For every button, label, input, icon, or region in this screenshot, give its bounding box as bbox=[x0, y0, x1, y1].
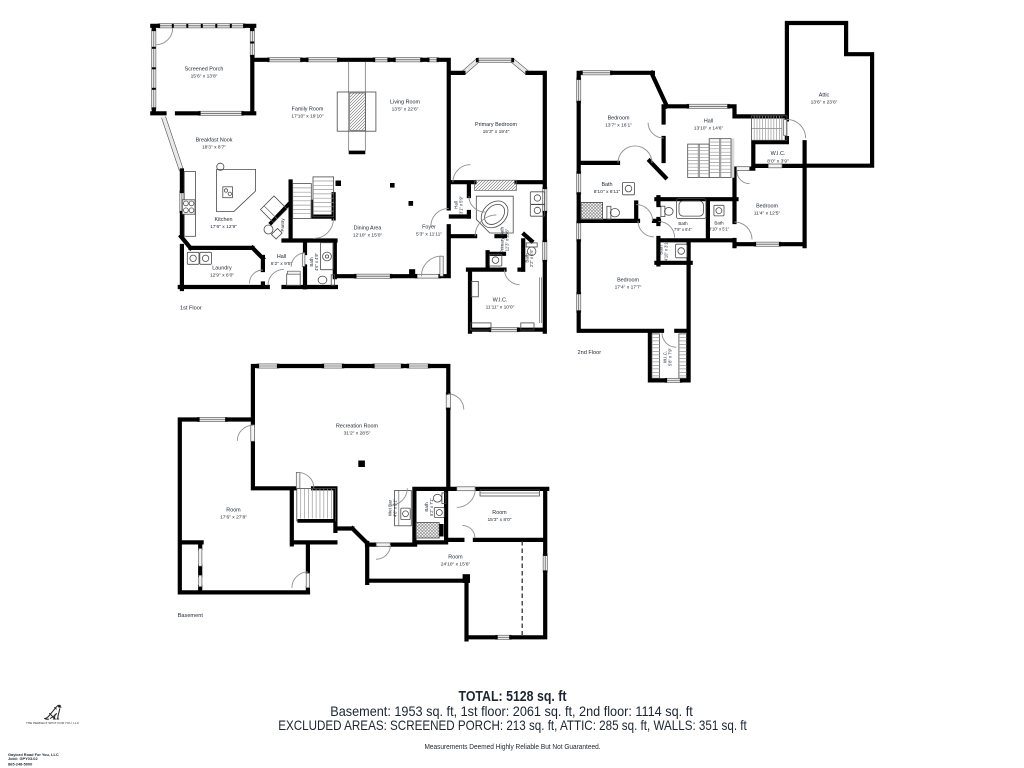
svg-text:13'6" x 23'6": 13'6" x 23'6" bbox=[811, 100, 838, 106]
svg-text:Screened Porch: Screened Porch bbox=[185, 67, 224, 73]
svg-text:8'10" x 6'11": 8'10" x 6'11" bbox=[594, 189, 621, 195]
svg-text:6'2" x 9'5": 6'2" x 9'5" bbox=[271, 261, 293, 267]
svg-text:Attic: Attic bbox=[819, 93, 830, 99]
svg-text:Room: Room bbox=[448, 555, 463, 561]
svg-text:Room: Room bbox=[226, 508, 241, 514]
svg-text:12'9" x 6'0": 12'9" x 6'0" bbox=[210, 273, 234, 279]
svg-text:Primary Bedroom: Primary Bedroom bbox=[475, 122, 517, 128]
svg-text:Bath: Bath bbox=[714, 221, 724, 226]
svg-text:Bedroom: Bedroom bbox=[756, 204, 778, 210]
svg-text:Kitchen: Kitchen bbox=[215, 217, 233, 223]
svg-text:5'3" x 11'11": 5'3" x 11'11" bbox=[416, 232, 442, 238]
svg-text:Job#: GPY03-02: Job#: GPY03-02 bbox=[8, 756, 38, 761]
svg-text:12'3" x 13'6": 12'3" x 13'6" bbox=[505, 228, 510, 251]
svg-text:Bath: Bath bbox=[678, 221, 688, 226]
svg-text:3'10" x 5'1": 3'10" x 5'1" bbox=[709, 227, 730, 232]
svg-text:Hall: Hall bbox=[704, 119, 713, 125]
svg-text:Family Room: Family Room bbox=[292, 107, 324, 113]
svg-text:4'10" x 3'10": 4'10" x 3'10" bbox=[664, 238, 669, 261]
svg-text:Laundry: Laundry bbox=[212, 266, 232, 272]
svg-text:17'6" x 27'8": 17'6" x 27'8" bbox=[220, 515, 247, 521]
svg-text:2'2" x 6'6": 2'2" x 6'6" bbox=[529, 249, 534, 267]
svg-text:Breakfast Nook: Breakfast Nook bbox=[196, 138, 233, 144]
svg-text:13'10" x 14'6": 13'10" x 14'6" bbox=[694, 126, 724, 132]
svg-text:3'1" x 5'9": 3'1" x 5'9" bbox=[459, 196, 464, 214]
svg-text:Foyer: Foyer bbox=[422, 225, 436, 231]
svg-text:31'2" x 28'5": 31'2" x 28'5" bbox=[344, 431, 371, 437]
svg-text:5'2" x 7'1": 5'2" x 7'1" bbox=[429, 498, 434, 516]
svg-text:Bedroom: Bedroom bbox=[617, 278, 639, 284]
svg-text:EXCLUDED AREAS: SCREENED PORCH: EXCLUDED AREAS: SCREENED PORCH: 213 sq. … bbox=[278, 717, 747, 733]
svg-text:W.I.C.: W.I.C. bbox=[493, 298, 508, 304]
svg-text:13'7" x 16'1": 13'7" x 16'1" bbox=[605, 123, 632, 129]
svg-text:4'8" x 8'1": 4'8" x 8'1" bbox=[392, 499, 397, 517]
svg-text:15'3" x 8'0": 15'3" x 8'0" bbox=[487, 517, 511, 523]
svg-text:Hall: Hall bbox=[277, 254, 286, 260]
svg-text:13'5" x 22'6": 13'5" x 22'6" bbox=[392, 107, 419, 113]
svg-text:Living Room: Living Room bbox=[390, 100, 420, 106]
svg-text:Bedroom: Bedroom bbox=[608, 116, 630, 122]
svg-text:1st Floor: 1st Floor bbox=[180, 306, 202, 312]
svg-text:11'4" x 12'5": 11'4" x 12'5" bbox=[754, 211, 781, 217]
svg-text:8'0" x 3'9": 8'0" x 3'9" bbox=[767, 159, 789, 165]
svg-text:15'6" x 13'8": 15'6" x 13'8" bbox=[191, 74, 218, 80]
svg-text:Recreation Room: Recreation Room bbox=[336, 424, 378, 430]
svg-text:11'11" x 10'0": 11'11" x 10'0" bbox=[486, 305, 515, 311]
svg-text:Room: Room bbox=[492, 510, 507, 516]
svg-text:18'3" x 8'7": 18'3" x 8'7" bbox=[202, 145, 226, 151]
svg-text:5'8" x 7'9": 5'8" x 7'9" bbox=[668, 348, 673, 366]
svg-text:Dining Area: Dining Area bbox=[354, 226, 382, 232]
svg-text:7'9" x 6'4": 7'9" x 6'4" bbox=[674, 227, 692, 232]
svg-text:15'3" x 19'4": 15'3" x 19'4" bbox=[483, 129, 510, 135]
svg-text:17'10" x 19'10": 17'10" x 19'10" bbox=[291, 114, 324, 120]
svg-text:2nd Floor: 2nd Floor bbox=[578, 350, 602, 356]
svg-text:Pantry: Pantry bbox=[280, 218, 285, 232]
svg-text:865-248-5000: 865-248-5000 bbox=[8, 762, 32, 767]
svg-text:17'6" x 12'9": 17'6" x 12'9" bbox=[210, 224, 237, 230]
svg-text:Basement: Basement bbox=[178, 613, 204, 619]
svg-text:W.I.C.: W.I.C. bbox=[771, 151, 786, 157]
svg-text:12'10" x 15'0": 12'10" x 15'0" bbox=[353, 233, 383, 239]
svg-text:Bath: Bath bbox=[601, 182, 612, 188]
svg-text:THE PERFECT SPOT FOR YOU, LLC: THE PERFECT SPOT FOR YOU, LLC bbox=[26, 721, 80, 725]
svg-text:24'10" x 15'6": 24'10" x 15'6" bbox=[441, 562, 471, 568]
svg-text:17'4" x 17'7": 17'4" x 17'7" bbox=[615, 285, 642, 291]
svg-text:Measurements Deemed Highly Rel: Measurements Deemed Highly Reliable But … bbox=[425, 744, 601, 751]
svg-text:4'6" x 4'9": 4'6" x 4'9" bbox=[314, 253, 319, 271]
